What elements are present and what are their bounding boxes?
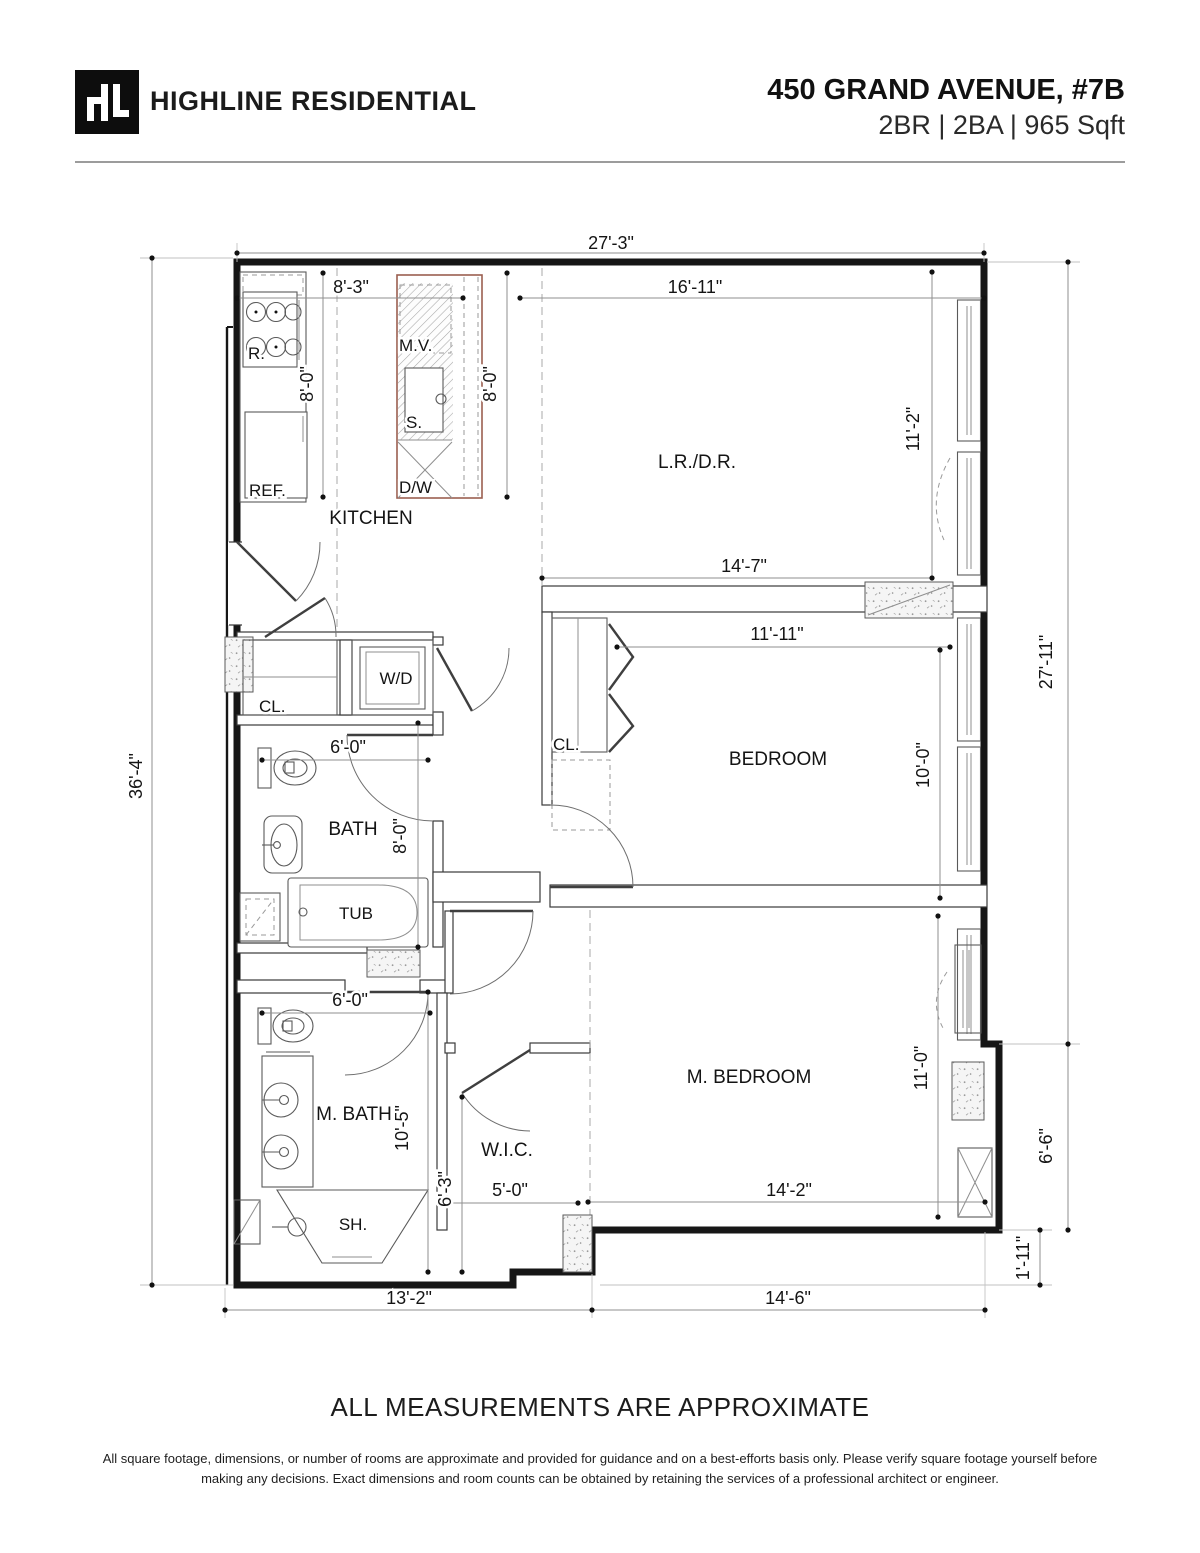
room-label-bath: BATH — [328, 819, 377, 840]
exterior-column — [563, 1215, 592, 1272]
master-bedroom-door — [450, 911, 533, 994]
door-swing-dashed — [936, 458, 950, 540]
wic-door — [462, 1050, 530, 1131]
label-shower: SH. — [339, 1215, 367, 1234]
dim-hall-top: 14'-7" — [721, 556, 767, 576]
label-tub: TUB — [339, 904, 373, 923]
shaft-x — [958, 1148, 992, 1217]
label-hall-closet: CL. — [259, 697, 285, 716]
bedroom-door — [550, 805, 633, 887]
dim-kitchen-top: 8'-3" — [333, 277, 369, 297]
page-footer: ALL MEASUREMENTS ARE APPROXIMATE All squ… — [0, 1392, 1200, 1489]
dim-mbath-depth: 10'-5" — [392, 1105, 412, 1151]
dim-wic-depth: 6'-3" — [435, 1171, 455, 1207]
bifold-door — [609, 624, 633, 690]
room-label-kitchen: KITCHEN — [329, 508, 412, 529]
toilet-icon — [258, 748, 316, 788]
dim-bottom-left: 13'-2" — [386, 1288, 432, 1308]
dim-right-step: 1'-11" — [1013, 1236, 1033, 1281]
room-labels: KITCHEN L.R./D.R. BEDROOM M. BEDROOM BAT… — [248, 336, 827, 1234]
door-saddle — [367, 950, 420, 977]
window-wall — [936, 300, 981, 1040]
room-label-wic: W.I.C. — [481, 1140, 533, 1161]
dim-mbath-width: 6'-0" — [332, 990, 368, 1010]
entry-door — [237, 542, 320, 601]
double-vanity-icon — [262, 1052, 313, 1187]
window-icon — [958, 747, 981, 871]
room-label-master-bedroom: M. BEDROOM — [687, 1067, 812, 1088]
dim-right-lower: 6'-6" — [1036, 1128, 1056, 1164]
entry-column — [225, 637, 253, 692]
entry-opening — [228, 542, 242, 625]
dim-overall-left: 36'-4" — [126, 753, 146, 799]
label-bedroom-closet: CL. — [553, 735, 579, 754]
room-label-bedroom: BEDROOM — [729, 749, 827, 770]
label-dishwasher: D/W — [399, 478, 432, 497]
label-fridge: REF. — [249, 481, 286, 500]
bedroom-closet — [552, 618, 633, 830]
dim-living-top: 16'-11" — [668, 277, 723, 297]
dim-mbedroom-depth: 11'-0" — [911, 1046, 931, 1091]
dim-mbedroom-width: 14'-2" — [766, 1180, 812, 1200]
exterior-walls — [227, 262, 999, 1285]
footer-disclaimer: All square footage, dimensions, or numbe… — [85, 1449, 1115, 1489]
footer-title: ALL MEASUREMENTS ARE APPROXIMATE — [0, 1392, 1200, 1423]
label-sink: S. — [406, 413, 422, 432]
floor-plan: 27'-3" 8'-3" 16'-11" 8'-0" 8'-0" 11'-2" … — [0, 0, 1200, 1553]
kitchen-fixtures — [240, 272, 482, 502]
dim-kitchen-right-run: 8'-0" — [480, 366, 500, 402]
bifold-door — [609, 694, 633, 752]
ptac-unit — [952, 1062, 984, 1120]
dim-kitchen-left-run: 8'-0" — [297, 366, 317, 402]
label-washer-dryer: W/D — [379, 669, 412, 688]
hall-closet-door — [265, 598, 336, 637]
hall-closet — [243, 640, 337, 715]
room-label-master-bath: M. BATH — [316, 1104, 392, 1125]
dim-wic-width: 5'-0" — [492, 1180, 528, 1200]
bath-sink-icon — [262, 816, 302, 873]
room-label-living: L.R./D.R. — [658, 452, 736, 473]
dim-overall-top: 27'-3" — [588, 233, 634, 253]
window-icon — [958, 618, 981, 741]
dim-bath-width: 6'-0" — [330, 737, 366, 757]
window-icon — [958, 300, 981, 441]
dim-bedroom-width: 11'-11" — [750, 624, 803, 644]
dim-living-depth: 11'-2" — [903, 407, 923, 452]
washer-dryer-door — [437, 648, 509, 711]
dim-bath-depth: 8'-0" — [390, 818, 410, 854]
dim-bedroom-depth: 10'-0" — [913, 742, 933, 788]
window-icon — [958, 452, 981, 575]
kitchen-island — [397, 275, 482, 498]
dim-bottom-right: 14'-6" — [765, 1288, 811, 1308]
label-range: R. — [248, 344, 265, 363]
dim-overall-right: 27'-11" — [1036, 635, 1056, 690]
label-microwave: M.V. — [399, 336, 432, 355]
